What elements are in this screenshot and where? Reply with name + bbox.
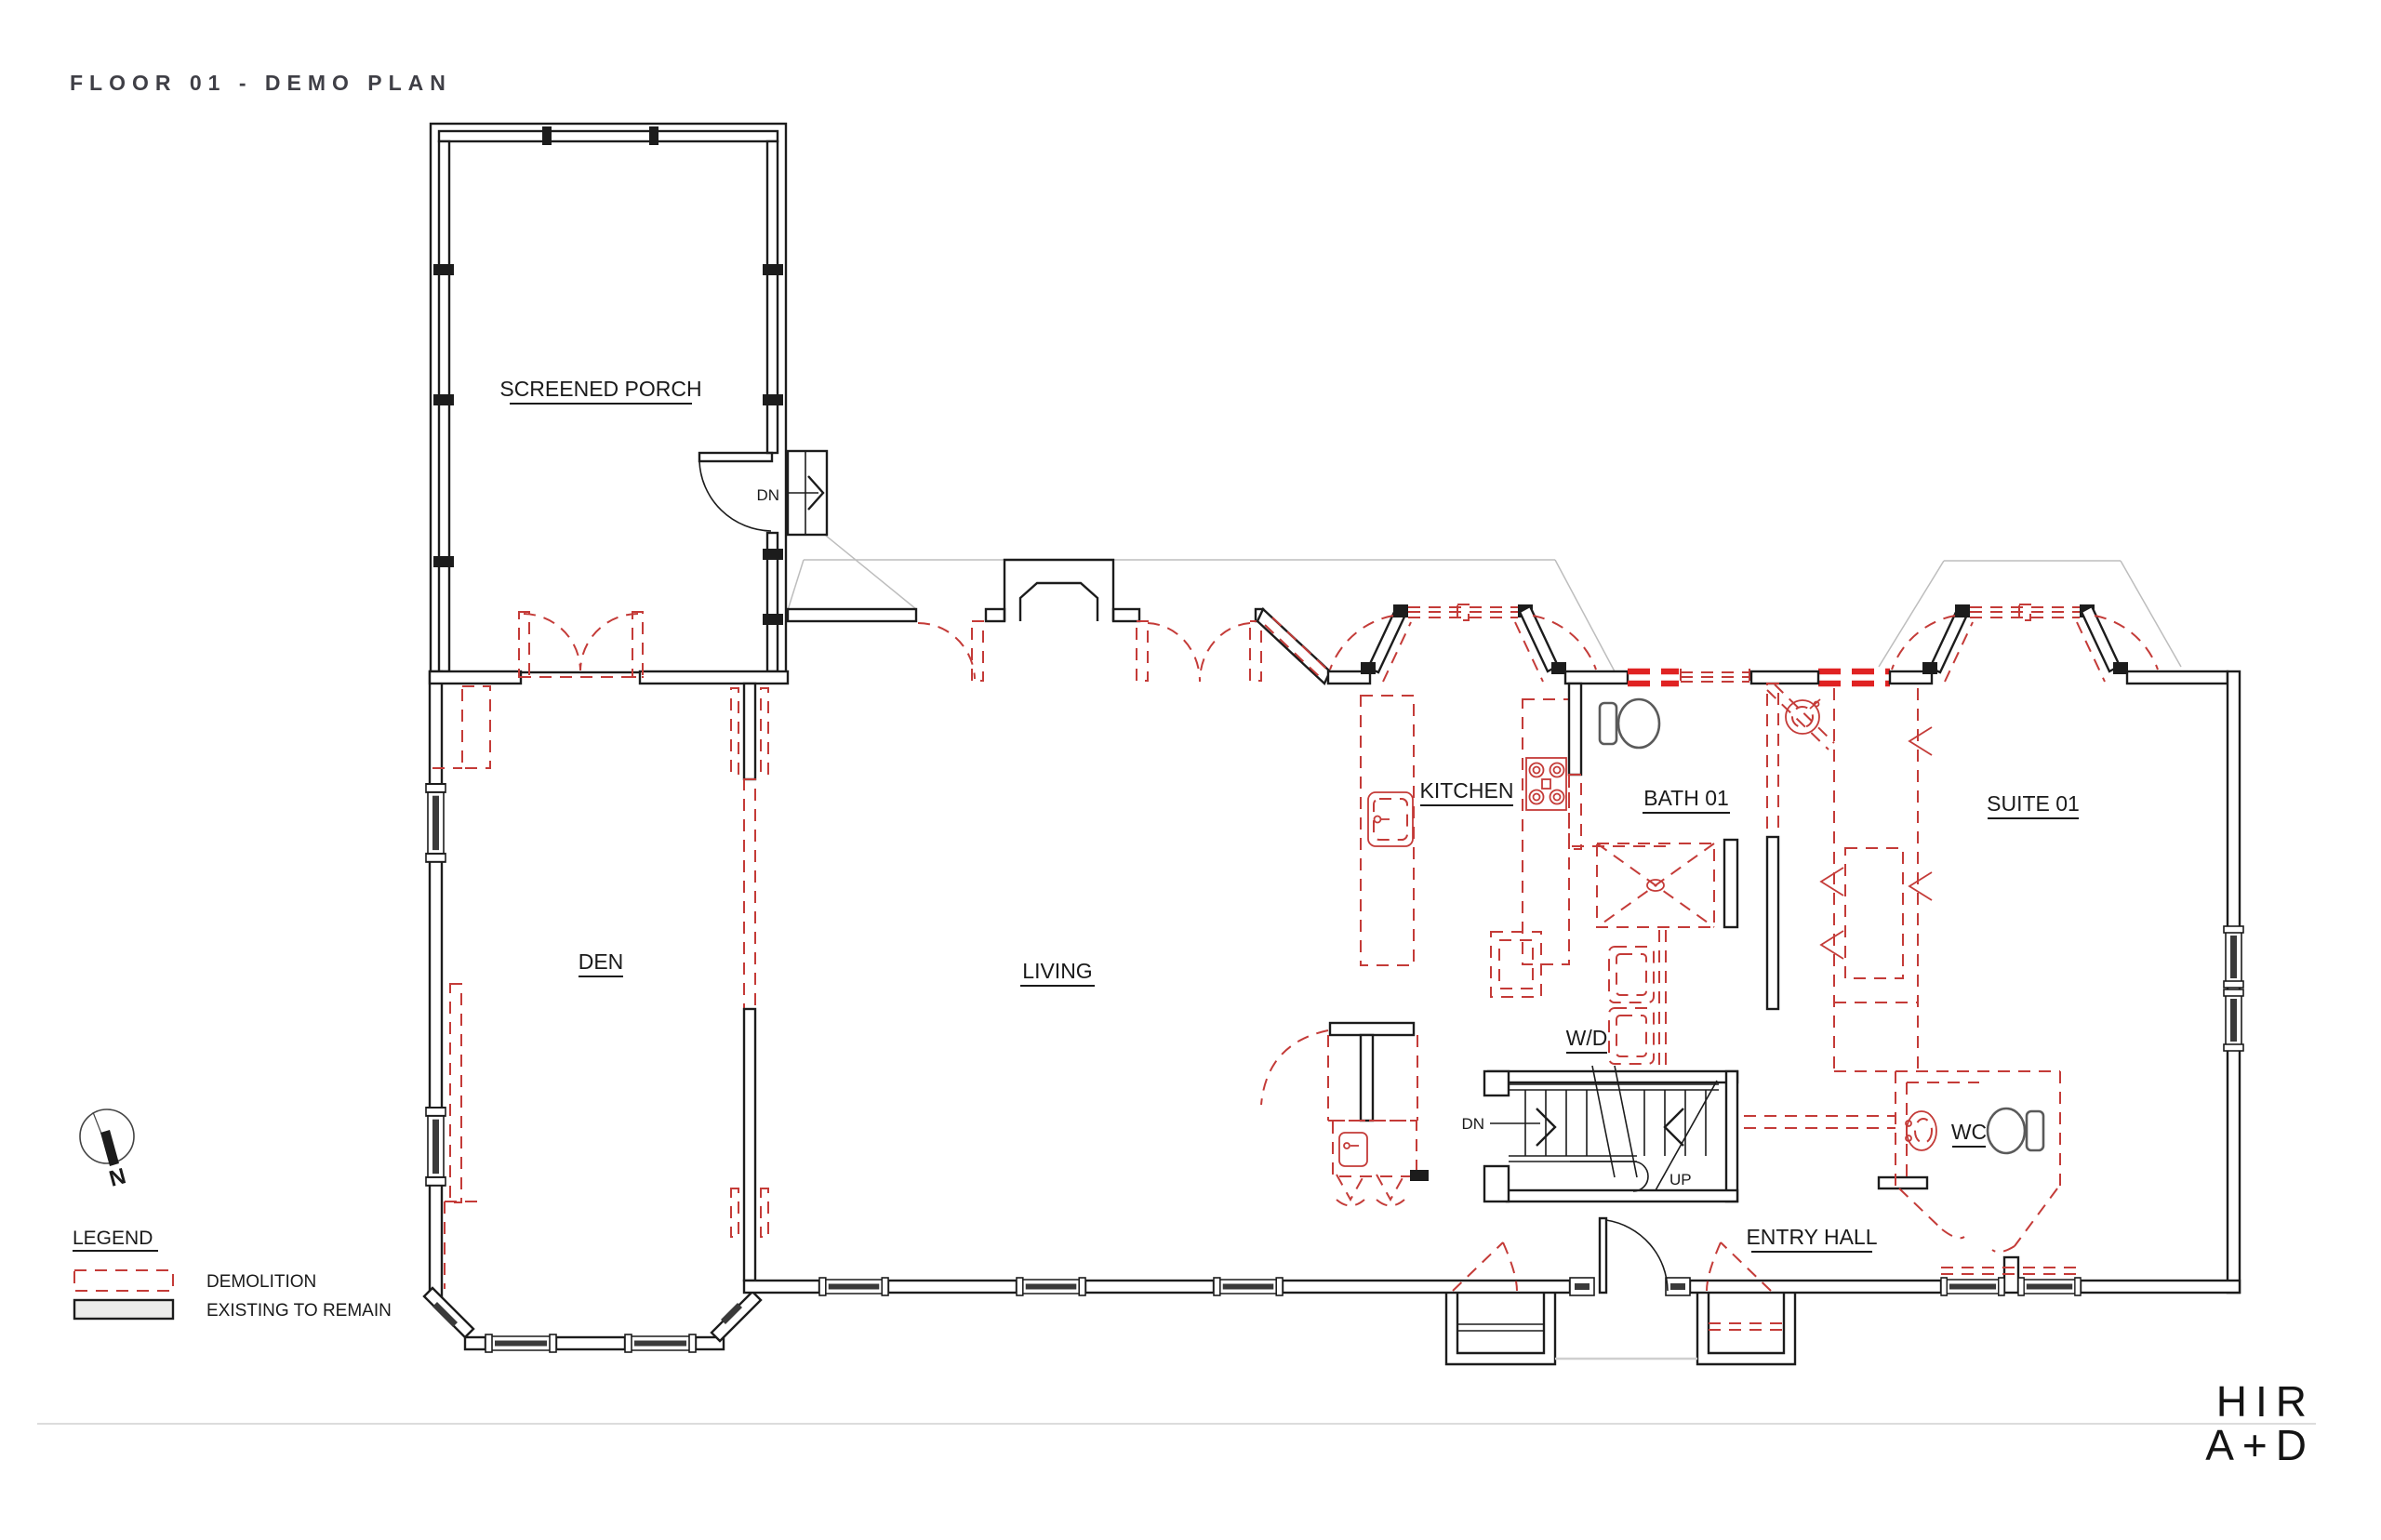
roof-overhang-lines [788, 536, 2181, 671]
den: DEN [424, 612, 788, 1352]
stair-dn-label: DN [1461, 1115, 1484, 1133]
legend-swatch-existing [74, 1300, 173, 1319]
demolished-living-doors [918, 621, 1261, 682]
wc-toilet [1988, 1109, 2043, 1153]
kitchen-sink [1368, 792, 1413, 846]
legend-swatch-demolition [74, 1270, 173, 1291]
north-label: N [107, 1163, 129, 1192]
room-label-kitchen: KITCHEN [1420, 778, 1514, 803]
legend-label-demolition: DEMOLITION [206, 1272, 316, 1292]
demolished-kitchen-casework [1361, 696, 1666, 1069]
entry-stoops [1446, 1293, 1795, 1364]
room-label-suite-01: SUITE 01 [1987, 791, 2080, 816]
living: LIVING [744, 560, 1570, 1295]
floor-plan-svg: FLOOR 01 - DEMO PLAN [0, 0, 2381, 1540]
room-label-entry-hall: ENTRY HALL [1746, 1225, 1877, 1249]
room-label-living: LIVING [1022, 959, 1092, 983]
legend: LEGEND DEMOLITION EXISTING TO REMAIN [73, 1228, 392, 1321]
logo-line-1: HIR [2216, 1377, 2315, 1426]
stair-up-label: UP [1669, 1171, 1692, 1188]
den-living-divider-wall [744, 684, 755, 1281]
north-arrow: N [80, 1109, 134, 1192]
demolished-powder-room [1261, 1023, 1429, 1206]
bath-corner-sink [1767, 684, 1834, 750]
front-door [1600, 1218, 1668, 1293]
wc: WC [1895, 1071, 2060, 1252]
room-label-wc: WC [1951, 1120, 1987, 1144]
kitchen-range [1526, 758, 1566, 810]
stairs: DN UP [1461, 1066, 1737, 1201]
legend-heading: LEGEND [73, 1228, 153, 1249]
porch-dn-label: DN [756, 486, 779, 504]
drawing-sheet: FLOOR 01 - DEMO PLAN [0, 0, 2381, 1540]
door-sidelights [1570, 1278, 1690, 1295]
room-label-screened-porch: SCREENED PORCH [499, 377, 701, 401]
wc-sink [1906, 1111, 1936, 1150]
legend-label-existing: EXISTING TO REMAIN [206, 1301, 392, 1321]
footer: HIR A+D [37, 1377, 2316, 1469]
demolished-closets [1821, 688, 1932, 1071]
room-label-den: DEN [579, 949, 624, 974]
bath-shower [1597, 843, 1714, 927]
porch-exit-door: DN [699, 451, 827, 535]
den-demolition-marks [432, 686, 768, 1289]
suite-01: SUITE 01 [1890, 604, 2243, 1293]
entry-hall: ENTRY HALL [1446, 1116, 2240, 1364]
demolished-window [1681, 669, 1749, 685]
demolished-french-doors-porch [519, 612, 644, 677]
page-title: FLOOR 01 - DEMO PLAN [70, 71, 452, 95]
fireplace [1004, 560, 1113, 621]
bath-toilet [1600, 699, 1659, 748]
logo-line-2: A+D [2205, 1421, 2315, 1469]
washer-dryer: W/D [1566, 947, 1654, 1064]
room-label-wd: W/D [1566, 1026, 1608, 1050]
screened-porch: DN SCREENED PORCH [431, 124, 827, 672]
bath-01: BATH 01 [1569, 671, 1834, 1009]
room-label-bath-01: BATH 01 [1643, 786, 1729, 810]
